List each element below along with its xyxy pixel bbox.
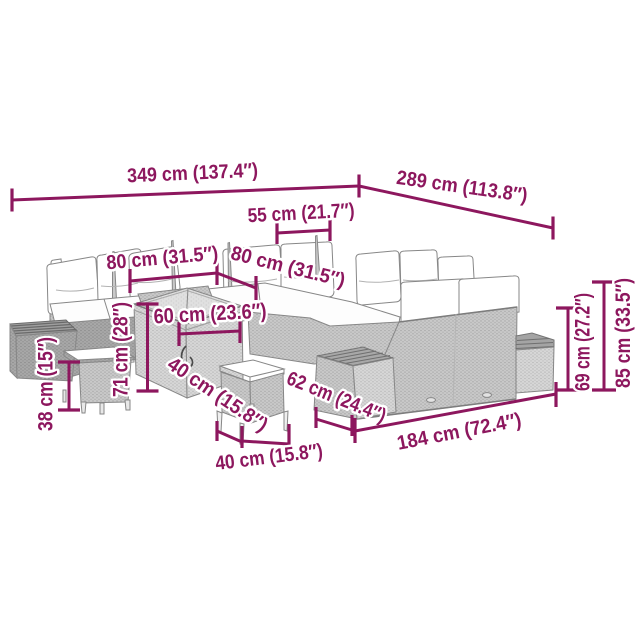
svg-text:71 cm (28″): 71 cm (28″) [110,302,133,397]
svg-text:85 cm (33.5″): 85 cm (33.5″) [612,278,635,388]
svg-text:69 cm (27.2″): 69 cm (27.2″) [572,293,595,391]
svg-text:38 cm (15″): 38 cm (15″) [35,337,58,431]
